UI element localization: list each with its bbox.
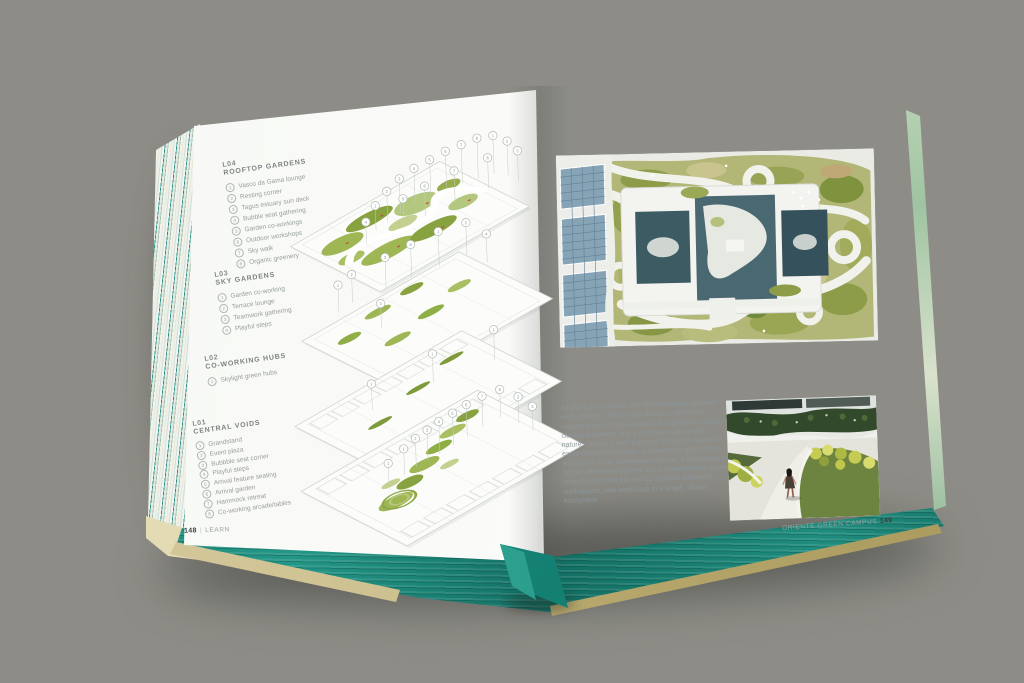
item-number-badge: 1 <box>217 292 227 302</box>
photo-backdrop: 12345678123456781234123411112345678123 L… <box>0 0 1024 683</box>
item-number-badge: 4 <box>199 470 209 480</box>
item-number-badge: 4 <box>222 325 232 335</box>
item-number-badge: 4 <box>230 215 240 225</box>
item-number-badge: 7 <box>234 248 244 258</box>
item-number-badge: 2 <box>196 450 206 460</box>
item-number-badge: 3 <box>228 204 238 214</box>
aerial-campus-photo <box>556 148 878 347</box>
item-number-badge: 1 <box>195 441 205 451</box>
page-number-left: 148 <box>184 527 197 534</box>
item-number-badge: 6 <box>233 237 243 247</box>
walkway-photo <box>726 395 880 520</box>
item-number-badge: 8 <box>204 509 214 519</box>
item-number-badge: 1 <box>207 376 217 386</box>
item-number-badge: 3 <box>198 460 208 470</box>
legend-l01: L01CENTRAL VOIDS1Grandstand2Event plaza3… <box>192 409 292 520</box>
item-number-badge: 2 <box>219 303 229 313</box>
item-number-badge: 2 <box>227 193 237 203</box>
intro-paragraph: As cities grow denser and the boundaries… <box>560 398 731 506</box>
solar-panel-strip <box>556 154 615 347</box>
item-number-badge: 1 <box>225 182 235 192</box>
item-number-badge: 6 <box>202 489 212 499</box>
item-number-badge: 5 <box>200 479 210 489</box>
page-number-right: 149 <box>879 517 892 525</box>
section-label: LEARN <box>205 526 230 534</box>
item-number-badge: 5 <box>231 226 241 236</box>
main-building <box>621 183 830 322</box>
item-number-badge: 3 <box>220 314 230 324</box>
legend-l03: L03SKY GARDENS1Garden co-working2Terrace… <box>214 262 294 336</box>
item-number-badge: 7 <box>203 499 213 509</box>
footer-divider: | <box>200 527 203 534</box>
legend-l04: L04ROOFTOP GARDENS1Vasco da Gama lounge2… <box>222 150 320 270</box>
